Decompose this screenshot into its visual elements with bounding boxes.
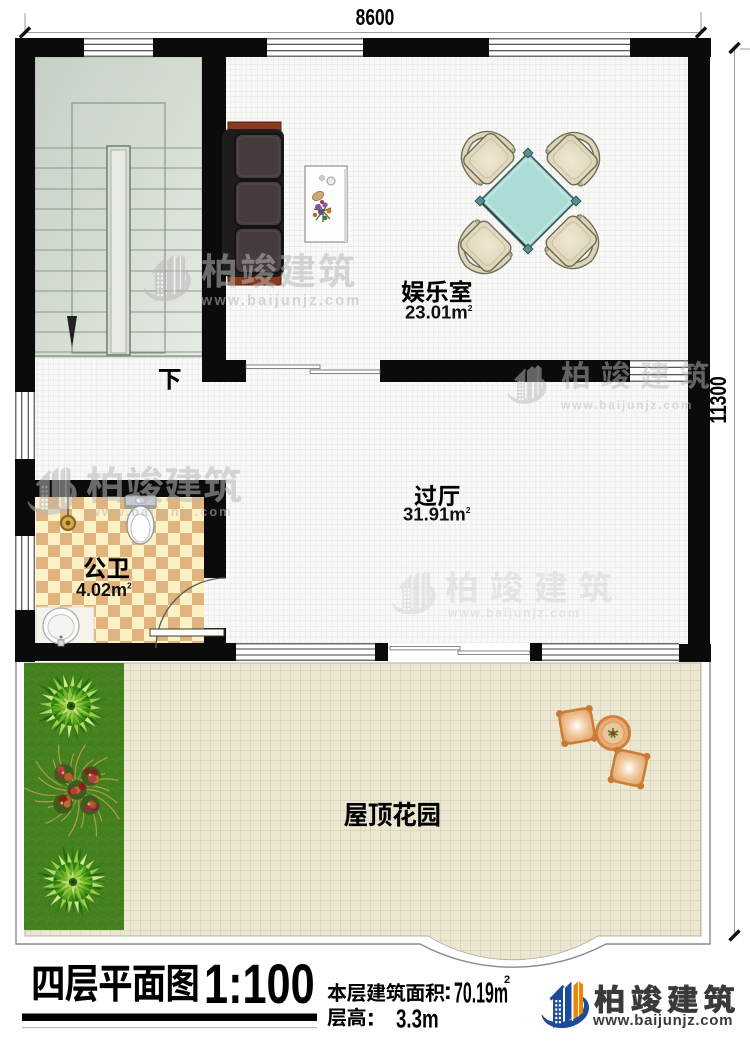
svg-text:www.baijunjz.com: www.baijunjz.com <box>447 606 580 620</box>
svg-text:www.baijunjz.com: www.baijunjz.com <box>200 293 361 309</box>
svg-text:8600: 8600 <box>356 5 395 31</box>
svg-text:www.baijunjz.com: www.baijunjz.com <box>560 398 693 412</box>
svg-text:23.01m2: 23.01m2 <box>405 302 473 323</box>
svg-text:31.91m2: 31.91m2 <box>403 504 471 525</box>
svg-text:3.3m: 3.3m <box>396 1003 439 1033</box>
svg-text:70.19m: 70.19m <box>454 976 508 1008</box>
svg-text:4.02m2: 4.02m2 <box>76 580 132 600</box>
svg-text:www.baijunjz.com: www.baijunjz.com <box>89 504 233 519</box>
svg-text:2: 2 <box>504 974 510 986</box>
svg-text:www.baijunjz.com: www.baijunjz.com <box>592 1012 733 1029</box>
svg-text:1:100: 1:100 <box>204 953 315 1015</box>
